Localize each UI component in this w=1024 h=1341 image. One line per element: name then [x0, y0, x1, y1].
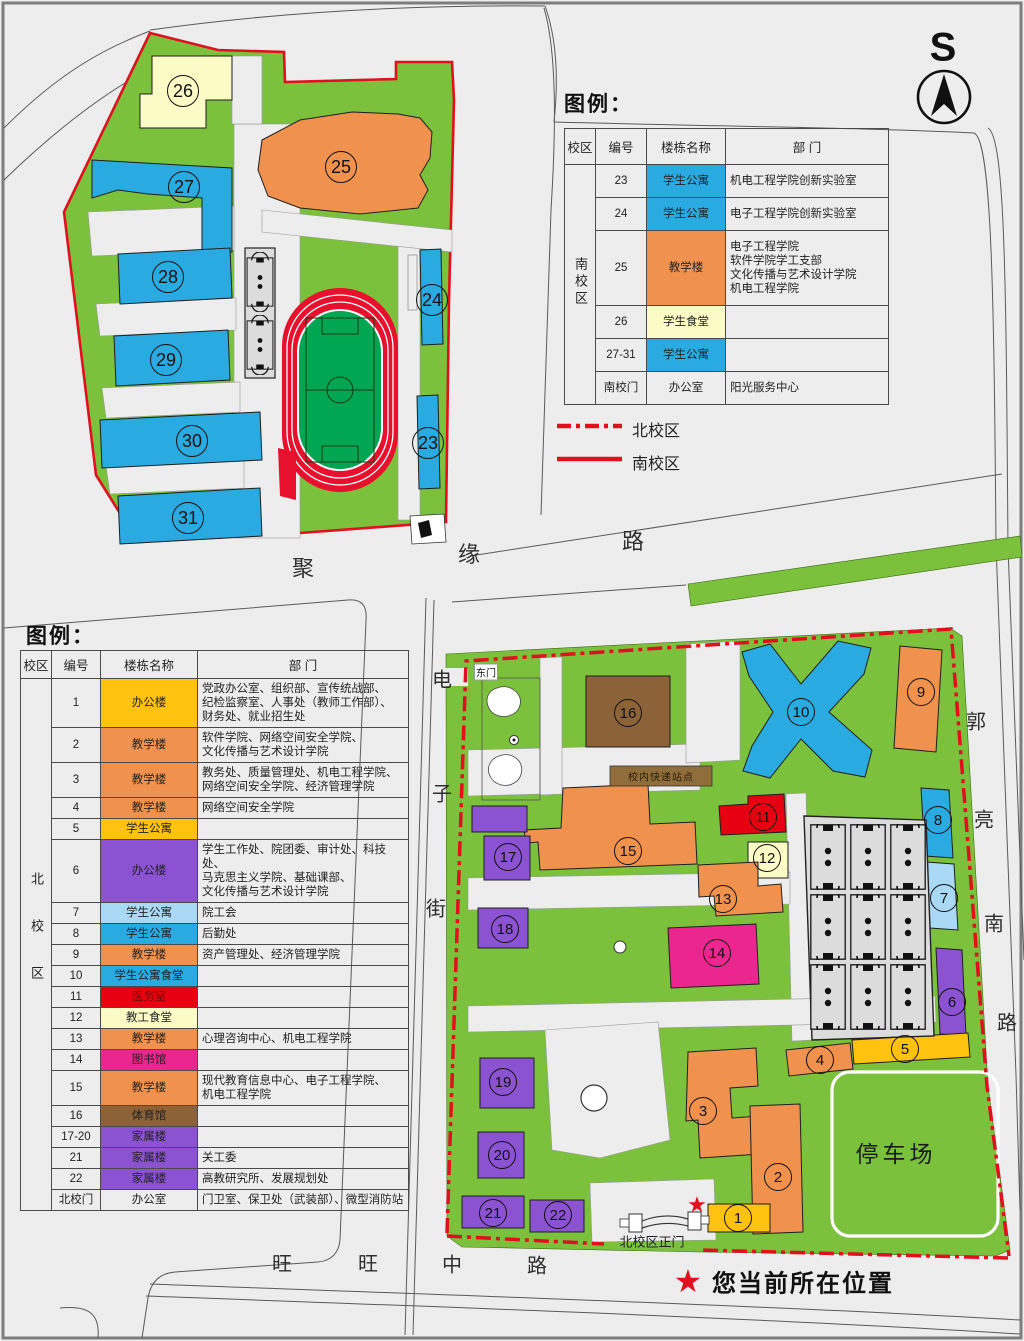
departments: 门卫室、保卫处（武装部）、微型消防站	[198, 1190, 409, 1211]
building-badge-13: 13	[709, 885, 737, 913]
building-number: 3	[52, 763, 101, 798]
legend-row-26: 26学生食堂	[565, 306, 889, 339]
departments: 心理咨询中心、机电工程学院	[198, 1029, 409, 1050]
building-name: 学生公寓	[647, 165, 726, 198]
building-name: 教工食堂	[101, 1008, 198, 1029]
building-number: 21	[52, 1148, 101, 1169]
building-number: 25	[596, 231, 647, 306]
legend-south-title: 图例：	[564, 88, 633, 118]
departments: 关工委	[198, 1148, 409, 1169]
departments	[198, 1050, 409, 1071]
building-name: 家属楼	[101, 1148, 198, 1169]
building-name: 办公室	[101, 1190, 198, 1211]
legend-row-21: 21家属楼关工委	[21, 1148, 409, 1169]
legend-header: 校区	[21, 651, 52, 679]
departments: 电子工程学院创新实验室	[726, 198, 889, 231]
building-badge-17: 17	[494, 843, 522, 871]
location-legend-star: ★	[674, 1262, 703, 1300]
legend-north-table: 校区编号楼栋名称部 门北校区1办公楼党政办公室、组织部、宣传统战部、纪检监察室、…	[20, 650, 409, 1211]
building-number: 16	[52, 1106, 101, 1127]
building-name: 教学楼	[101, 945, 198, 966]
building-number: 8	[52, 924, 101, 945]
legend-row-3: 3教学楼教务处、质量管理处、机电工程学院、网络空间安全学院、经济管理学院	[21, 763, 409, 798]
legend-row-南校门: 南校门办公室阳光服务中心	[565, 372, 889, 405]
building-badge-10: 10	[787, 698, 815, 726]
legend-row-2: 2教学楼软件学院、网络空间安全学院、文化传播与艺术设计学院	[21, 728, 409, 763]
building-badge-21: 21	[479, 1199, 507, 1227]
building-name: 学生公寓	[647, 339, 726, 372]
building-number: 9	[52, 945, 101, 966]
departments: 机电工程学院创新实验室	[726, 165, 889, 198]
legend-header: 编号	[596, 129, 647, 165]
legend-row-24: 24学生公寓电子工程学院创新实验室	[565, 198, 889, 231]
legend-north-title: 图例：	[26, 620, 95, 650]
legend-row-15: 15教学楼现代教育信息中心、电子工程学院、机电工程学院	[21, 1071, 409, 1106]
legend-header: 编号	[52, 651, 101, 679]
building-name: 教学楼	[101, 1071, 198, 1106]
building-number: 北校门	[52, 1190, 101, 1211]
legend-header: 楼栋名称	[647, 129, 726, 165]
building-name: 教学楼	[101, 1029, 198, 1050]
building-badge-23: 23	[412, 427, 444, 459]
road-label-dianzi-char: 子	[432, 778, 452, 807]
departments: 教务处、质量管理处、机电工程学院、网络空间安全学院、经济管理学院	[198, 763, 409, 798]
building-name: 办公楼	[101, 679, 198, 728]
legend-row-17-20: 17-20家属楼	[21, 1127, 409, 1148]
legend-row-5: 5学生公寓	[21, 819, 409, 840]
campus-cell: 南校区	[565, 165, 596, 405]
building-badge-6: 6	[938, 988, 966, 1016]
building-badge-12: 12	[753, 844, 781, 872]
building-number: 22	[52, 1169, 101, 1190]
legend-row-4: 4教学楼网络空间安全学院	[21, 798, 409, 819]
legend-header: 楼栋名称	[101, 651, 198, 679]
legend-row-11: 11医务室	[21, 987, 409, 1008]
building-badge-14: 14	[703, 939, 731, 967]
road-label-guoliang-char: 路	[997, 1007, 1017, 1036]
departments	[198, 987, 409, 1008]
building-badge-18: 18	[491, 915, 519, 943]
compass-south-label: S	[930, 26, 957, 71]
legend-row-6: 6办公楼学生工作处、院团委、审计处、科技处、马克思主义学院、基础课部、文化传播与…	[21, 840, 409, 903]
departments	[198, 1106, 409, 1127]
building-number: 1	[52, 679, 101, 728]
departments	[198, 1008, 409, 1029]
legend-row-25: 25教学楼电子工程学院软件学院学工支部文化传播与艺术设计学院机电工程学院	[565, 231, 889, 306]
legend-header: 校区	[565, 129, 596, 165]
departments: 现代教育信息中心、电子工程学院、机电工程学院	[198, 1071, 409, 1106]
legend-row-23: 南校区23学生公寓机电工程学院创新实验室	[565, 165, 889, 198]
legend-row-16: 16体育馆	[21, 1106, 409, 1127]
building-name: 办公楼	[101, 840, 198, 903]
departments	[198, 966, 409, 987]
building-badge-15: 15	[614, 837, 642, 865]
building-badge-27: 27	[168, 171, 200, 203]
departments: 电子工程学院软件学院学工支部文化传播与艺术设计学院机电工程学院	[726, 231, 889, 306]
building-number: 4	[52, 798, 101, 819]
building-badge-7: 7	[930, 884, 958, 912]
building-name: 医务室	[101, 987, 198, 1008]
legend-row-14: 14图书馆	[21, 1050, 409, 1071]
building-name: 教学楼	[101, 798, 198, 819]
building-number: 17-20	[52, 1127, 101, 1148]
legend-header: 部 门	[726, 129, 889, 165]
building-badge-22: 22	[544, 1201, 572, 1229]
building-badge-24: 24	[416, 284, 448, 316]
legend-south-table: 校区编号楼栋名称部 门南校区23学生公寓机电工程学院创新实验室24学生公寓电子工…	[564, 128, 889, 405]
legend-row-北校门: 北校门办公室门卫室、保卫处（武装部）、微型消防站	[21, 1190, 409, 1211]
building-name: 学生公寓	[101, 903, 198, 924]
building-number: 26	[596, 306, 647, 339]
current-location-star: ★	[687, 1192, 707, 1218]
north-gate-label: 北校区正门	[619, 1232, 684, 1251]
road-label-juyuan-char: 缘	[458, 537, 480, 569]
building-name: 家属楼	[101, 1169, 198, 1190]
legend-row-12: 12教工食堂	[21, 1008, 409, 1029]
building-badge-16: 16	[614, 699, 642, 727]
east-gate-label: 东门	[474, 664, 498, 681]
building-name: 学生公寓	[101, 819, 198, 840]
road-label-guoliang-char: 南	[984, 908, 1004, 937]
road-label-guoliang-char: 亮	[974, 804, 994, 833]
legend-row-27-31: 27-31学生公寓	[565, 339, 889, 372]
building-name: 家属楼	[101, 1127, 198, 1148]
legend-row-10: 10学生公寓食堂	[21, 966, 409, 987]
building-number: 5	[52, 819, 101, 840]
legend-row-22: 22家属楼高教研究所、发展规划处	[21, 1169, 409, 1190]
campus-label: 南校区	[573, 257, 587, 308]
building-number: 27-31	[596, 339, 647, 372]
road-label-guoliang-char: 郭	[966, 706, 986, 735]
building-name: 学生公寓	[101, 924, 198, 945]
legend-row-9: 9教学楼资产管理处、经济管理学院	[21, 945, 409, 966]
building-number: 14	[52, 1050, 101, 1071]
labels-overlay: 聚 缘 路 电 子 街 郭 亮 南 路 旺 旺 中 路 东门 校内快递站点 停车…	[0, 0, 1024, 1341]
departments	[198, 1127, 409, 1148]
campus-cell: 北校区	[21, 679, 52, 1211]
building-badge-5: 5	[891, 1035, 919, 1063]
building-number: 15	[52, 1071, 101, 1106]
road-label-juyuan-char: 聚	[292, 551, 314, 583]
building-badge-25: 25	[325, 151, 357, 183]
legend-row-1: 北校区1办公楼党政办公室、组织部、宣传统战部、纪检监察室、人事处（教师工作部）、…	[21, 679, 409, 728]
departments: 资产管理处、经济管理学院	[198, 945, 409, 966]
departments	[726, 339, 889, 372]
road-label-dianzi-char: 街	[426, 893, 446, 922]
building-number: 23	[596, 165, 647, 198]
legend-line-north-label: 北校区	[632, 417, 680, 441]
building-name: 学生食堂	[647, 306, 726, 339]
building-name: 学生公寓	[647, 198, 726, 231]
departments	[726, 306, 889, 339]
campus-label: 北校区	[29, 872, 43, 1013]
building-badge-20: 20	[488, 1141, 516, 1169]
building-name: 体育馆	[101, 1106, 198, 1127]
road-label-juyuan-char: 路	[622, 524, 644, 556]
building-badge-8: 8	[924, 806, 952, 834]
location-legend-label: 您当前所在位置	[712, 1264, 894, 1299]
building-badge-19: 19	[489, 1068, 517, 1096]
building-number: 南校门	[596, 372, 647, 405]
building-number: 12	[52, 1008, 101, 1029]
departments: 学生工作处、院团委、审计处、科技处、马克思主义学院、基础课部、文化传播与艺术设计…	[198, 840, 409, 903]
building-name: 教学楼	[101, 728, 198, 763]
building-badge-28: 28	[152, 261, 184, 293]
building-name: 学生公寓食堂	[101, 966, 198, 987]
legend-line-south-label: 南校区	[632, 450, 680, 474]
departments: 院工会	[198, 903, 409, 924]
legend-table: 校区编号楼栋名称部 门南校区23学生公寓机电工程学院创新实验室24学生公寓电子工…	[564, 128, 889, 405]
building-number: 10	[52, 966, 101, 987]
express-station-label: 校内快递站点	[628, 769, 694, 784]
departments: 阳光服务中心	[726, 372, 889, 405]
building-name: 教学楼	[647, 231, 726, 306]
departments: 高教研究所、发展规划处	[198, 1169, 409, 1190]
building-name: 办公室	[647, 372, 726, 405]
departments: 党政办公室、组织部、宣传统战部、纪检监察室、人事处（教师工作部）、财务处、就业招…	[198, 679, 409, 728]
building-badge-11: 11	[749, 803, 777, 831]
legend-row-8: 8学生公寓后勤处	[21, 924, 409, 945]
building-number: 7	[52, 903, 101, 924]
building-name: 图书馆	[101, 1050, 198, 1071]
campus-map: 聚 缘 路 电 子 街 郭 亮 南 路 旺 旺 中 路 东门 校内快递站点 停车…	[0, 0, 1024, 1341]
departments: 软件学院、网络空间安全学院、文化传播与艺术设计学院	[198, 728, 409, 763]
road-label-dianzi-char: 电	[432, 664, 452, 693]
departments: 网络空间安全学院	[198, 798, 409, 819]
building-number: 13	[52, 1029, 101, 1050]
building-badge-9: 9	[907, 678, 935, 706]
legend-row-13: 13教学楼心理咨询中心、机电工程学院	[21, 1029, 409, 1050]
road-label-wangwang-char: 中	[442, 1249, 462, 1278]
building-badge-29: 29	[150, 344, 182, 376]
legend-table: 校区编号楼栋名称部 门北校区1办公楼党政办公室、组织部、宣传统战部、纪检监察室、…	[20, 650, 409, 1211]
building-badge-31: 31	[172, 502, 204, 534]
road-label-wangwang-char: 旺	[358, 1248, 378, 1277]
building-badge-1: 1	[724, 1204, 752, 1232]
building-badge-2: 2	[764, 1163, 792, 1191]
legend-row-7: 7学生公寓院工会	[21, 903, 409, 924]
building-badge-30: 30	[176, 425, 208, 457]
building-number: 11	[52, 987, 101, 1008]
building-badge-4: 4	[806, 1046, 834, 1074]
building-badge-26: 26	[167, 75, 199, 107]
building-number: 6	[52, 840, 101, 903]
departments: 后勤处	[198, 924, 409, 945]
legend-header: 部 门	[198, 651, 409, 679]
road-label-wangwang-char: 旺	[272, 1248, 292, 1277]
building-number: 24	[596, 198, 647, 231]
building-name: 教学楼	[101, 763, 198, 798]
departments	[198, 819, 409, 840]
road-label-wangwang-char: 路	[527, 1250, 547, 1279]
building-number: 2	[52, 728, 101, 763]
building-badge-3: 3	[689, 1097, 717, 1125]
parking-label: 停车场	[856, 1135, 937, 1169]
